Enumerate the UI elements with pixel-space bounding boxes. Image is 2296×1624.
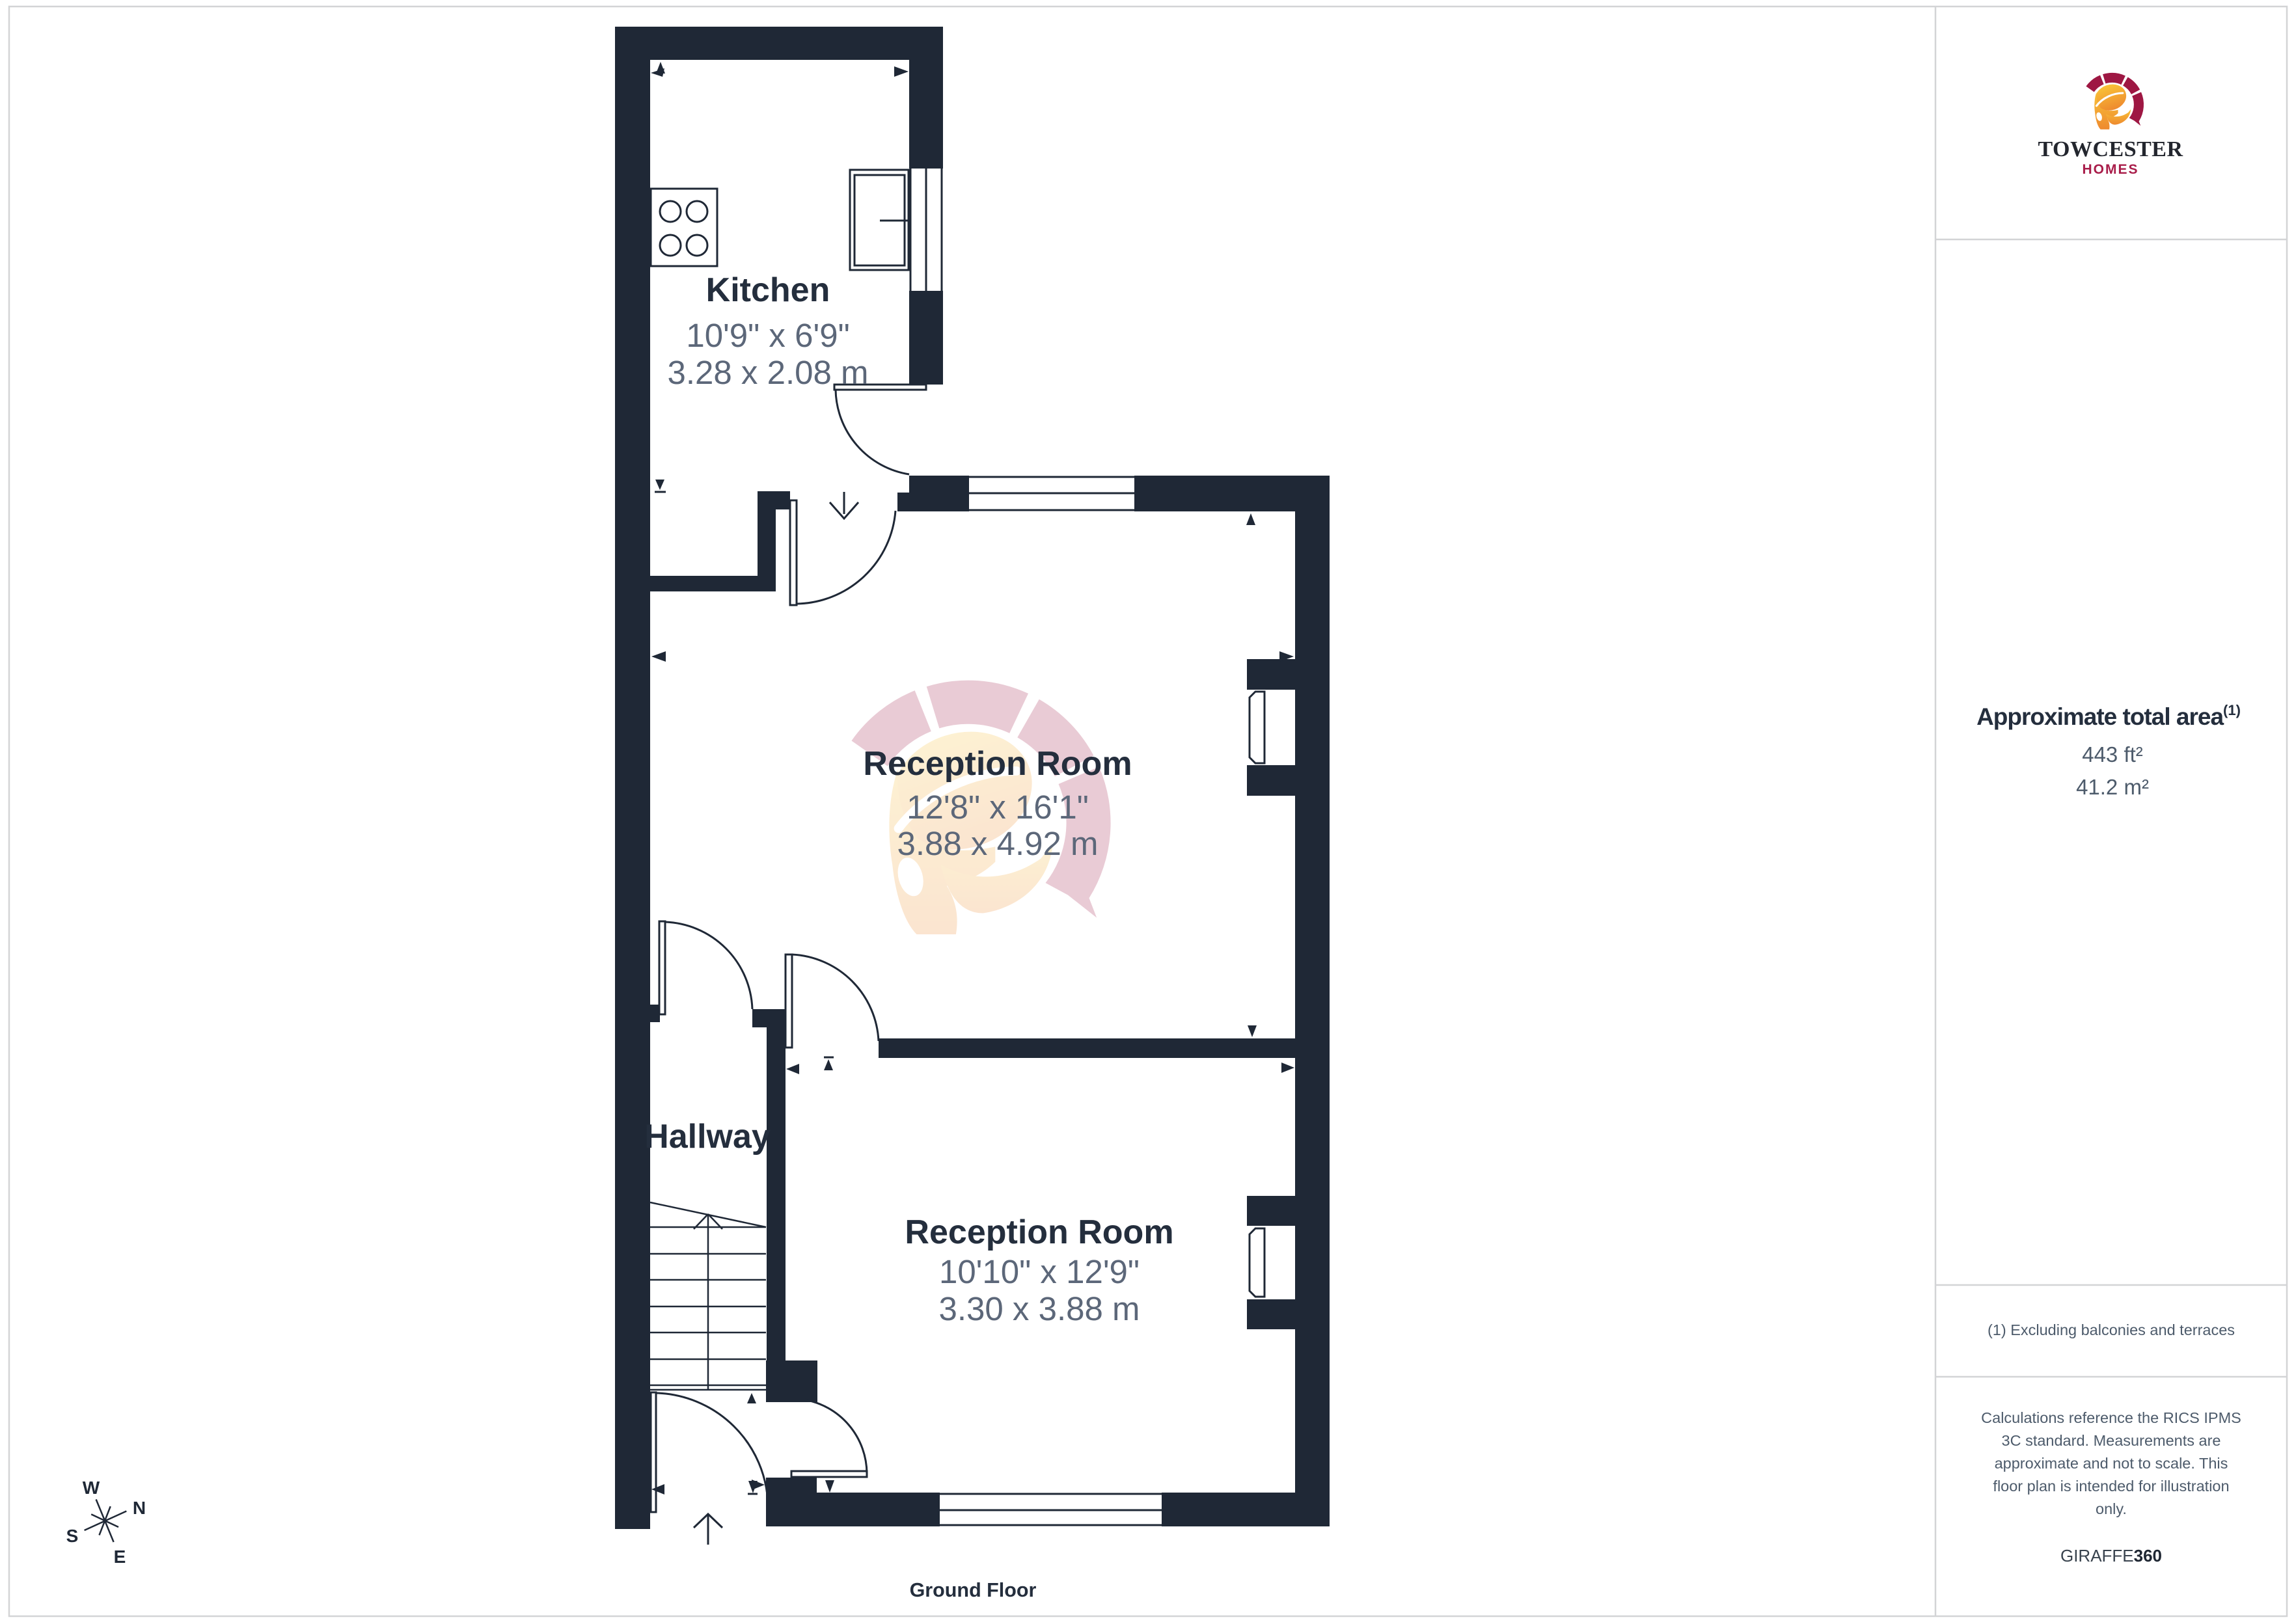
svg-text:41.2 m²: 41.2 m² <box>2076 775 2149 799</box>
svg-text:only.: only. <box>2096 1500 2127 1517</box>
svg-text:Reception Room: Reception Room <box>863 745 1132 783</box>
svg-text:Hallway: Hallway <box>644 1118 771 1156</box>
svg-text:Calculations reference the RIC: Calculations reference the RICS IPMS <box>1981 1409 2241 1426</box>
svg-text:3C standard. Measurements are: 3C standard. Measurements are <box>2002 1432 2221 1449</box>
svg-text:Ground Floor: Ground Floor <box>910 1579 1037 1601</box>
svg-text:floor plan is intended for ill: floor plan is intended for illustration <box>1993 1478 2229 1495</box>
svg-text:approximate and not to scale.: approximate and not to scale. This <box>1995 1455 2228 1472</box>
svg-text:(1) Excluding balconies and te: (1) Excluding balconies and terraces <box>1988 1321 2235 1338</box>
svg-text:Reception Room: Reception Room <box>905 1213 1173 1251</box>
svg-text:3.28 x 2.08 m: 3.28 x 2.08 m <box>667 354 868 391</box>
svg-text:TOWCESTER: TOWCESTER <box>2038 137 2183 161</box>
svg-text:E: E <box>114 1547 126 1567</box>
svg-text:443 ft²: 443 ft² <box>2082 742 2143 766</box>
svg-text:10'10" x 12'9": 10'10" x 12'9" <box>939 1253 1140 1290</box>
svg-text:10'9" x 6'9": 10'9" x 6'9" <box>686 317 849 354</box>
svg-text:GIRAFFE360: GIRAFFE360 <box>2060 1546 2162 1565</box>
svg-text:S: S <box>66 1526 79 1546</box>
svg-text:Approximate total area(1): Approximate total area(1) <box>1976 702 2241 730</box>
svg-text:W: W <box>83 1478 100 1498</box>
svg-text:HOMES: HOMES <box>2082 162 2139 177</box>
svg-text:3.30 x 3.88 m: 3.30 x 3.88 m <box>938 1290 1140 1327</box>
svg-text:3.88 x 4.92 m: 3.88 x 4.92 m <box>897 825 1098 862</box>
svg-text:12'8" x 16'1": 12'8" x 16'1" <box>907 789 1089 826</box>
svg-text:N: N <box>133 1498 146 1518</box>
svg-text:Kitchen: Kitchen <box>706 271 830 309</box>
